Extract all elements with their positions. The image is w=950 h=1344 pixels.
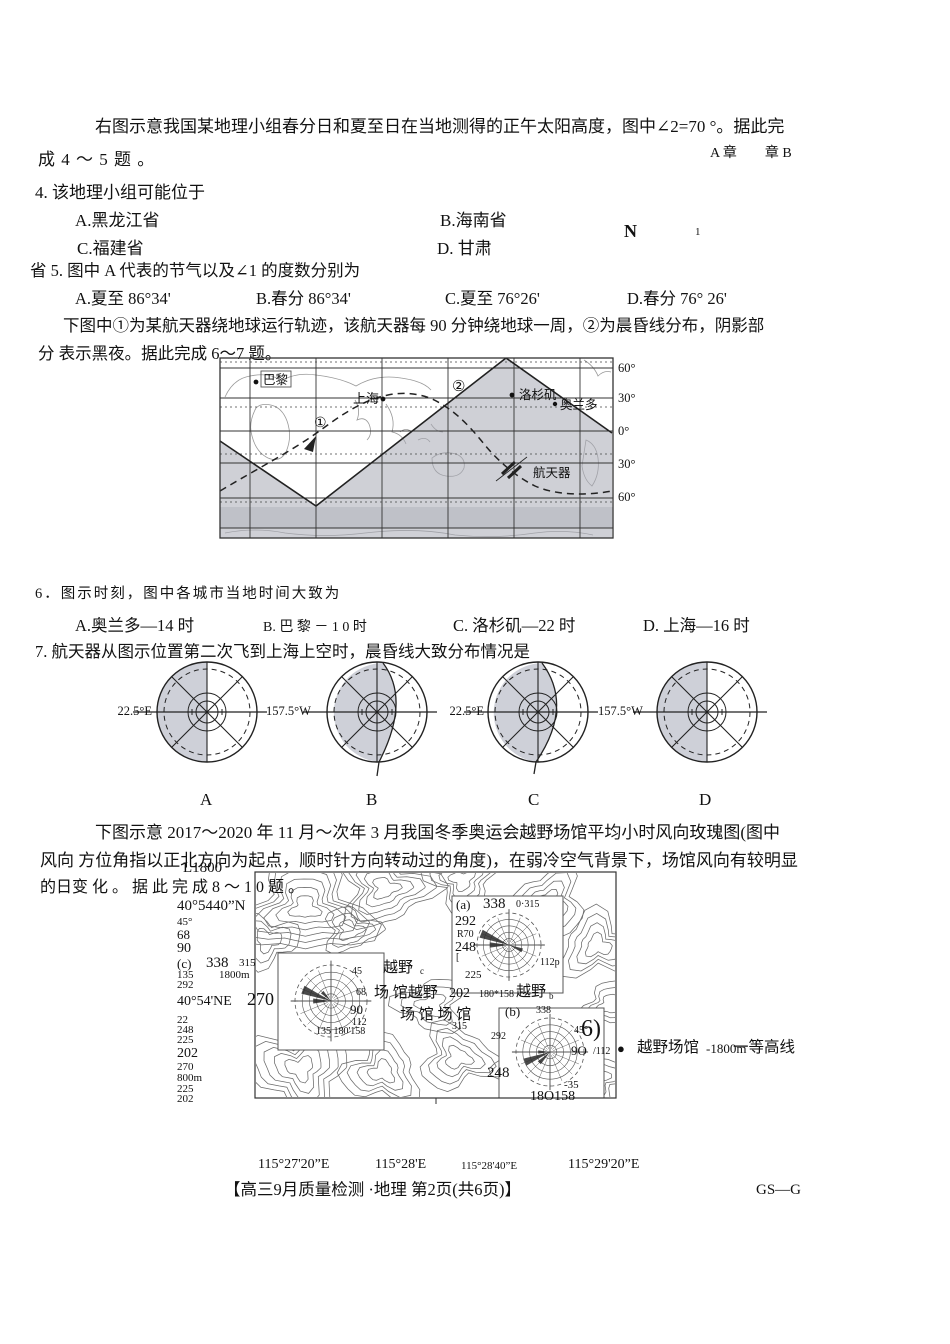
figure-remnant-n: N <box>624 220 637 243</box>
q5-option-a: A.夏至 86°34' <box>75 289 171 310</box>
q7-letter-d: D <box>699 789 711 810</box>
q4-option-c: C.福建省 <box>77 238 144 259</box>
shanghai-label: 上海 <box>353 391 379 406</box>
q4-option-b: B.海南省 <box>440 210 507 231</box>
scatter-label: 越野 <box>516 983 546 1002</box>
scatter-label: 292 <box>491 1031 506 1044</box>
svg-text:30°: 30° <box>618 391 636 405</box>
q7-lon-b: 157.5°W <box>266 704 311 720</box>
q4-option-a: A.黑龙江省 <box>75 210 160 231</box>
scatter-label: 45 <box>352 966 362 979</box>
scatter-label: 202 <box>449 985 470 1003</box>
q5-option-c: C.夏至 76°26' <box>445 289 540 310</box>
q7-lon-d: 157.5°W <box>598 704 643 720</box>
q5-stem: 省 5. 图中 A 代表的节气以及∠1 的度数分别为 <box>30 261 360 282</box>
scatter-label: (a) <box>456 897 470 913</box>
q7-letter-c: C <box>528 789 539 810</box>
scatter-label: 1800m <box>219 969 250 983</box>
q6-option-a: A.奥兰多—14 时 <box>75 616 194 637</box>
scatter-label: 225 <box>465 969 482 983</box>
footer-code: GS—G <box>756 1181 801 1200</box>
orlando-label: 奥兰多 <box>560 398 598 412</box>
scatter-label: 248 <box>487 1064 510 1083</box>
legend-venue-dot: ● <box>617 1041 625 1057</box>
contour-map-figure <box>250 864 630 1109</box>
scatter-label: 68 <box>356 987 366 1000</box>
intro810-line1: 下图示意 2017～2020 年 11 月～次年 3 月我国冬季奥运会越野场馆平… <box>95 822 780 843</box>
q5-option-d: D.春分 76° 26' <box>627 289 727 310</box>
world-map-figure: 巴黎 上海 洛杉矶 奥兰多 航天器 ① ② 60° 30° 0° 30° 60° <box>215 352 655 547</box>
orbit-marker-1: ① <box>314 416 327 431</box>
scatter-label: 90 <box>177 940 191 958</box>
q7-circle-d <box>633 662 767 762</box>
scatter-label: (b) <box>505 1004 520 1020</box>
lon-label-4: 115°29'20”E <box>568 1156 639 1174</box>
intro45-line2: 成 4 ～ 5 题 。 <box>38 149 155 170</box>
la-label: 洛杉矶 <box>519 387 557 402</box>
q7-letter-b: B <box>366 789 377 810</box>
q6-option-d: D. 上海—16 时 <box>643 616 750 637</box>
q7-circle-b <box>303 662 437 776</box>
q5-option-b: B.春分 86°34' <box>256 289 351 310</box>
q4-option-d: D. 甘肃 <box>437 238 492 259</box>
footer-title: 【高三9月质量检测 ·地理 第2页(共6页)】 <box>224 1180 521 1201</box>
scatter-label: 6) <box>581 1014 601 1044</box>
scatter-label: 0·315 <box>516 899 539 912</box>
q6-option-c: C. 洛杉矶—22 时 <box>453 616 575 637</box>
scatter-label: 9O <box>571 1043 587 1059</box>
scatter-label: 场 馆越野 <box>374 984 438 1003</box>
lon-label-3: 115°28'40”E <box>461 1160 517 1174</box>
terminator-marker-2: ② <box>452 379 465 395</box>
scatter-label: c <box>420 966 424 977</box>
paris-label: 巴黎 <box>263 373 289 387</box>
scatter-label: b <box>549 991 554 1002</box>
figure-remnant-1: 1 <box>695 226 701 240</box>
svg-text:0°: 0° <box>618 424 629 438</box>
scatter-label: 338 <box>483 895 506 914</box>
q6-option-b: B. 巴 黎 － 1 0 时 <box>263 619 367 637</box>
scatter-label: 202 <box>177 1045 198 1063</box>
q7-circle-c <box>464 662 598 774</box>
scatter-label: 90 <box>350 1002 363 1018</box>
scatter-label: 338 <box>536 1005 551 1018</box>
figure-remnant-ab: A 章 章 B <box>710 145 792 163</box>
intro810-line3: 的日变 化 。 据 此 完 成 8 ～ 1 0 题 。 <box>40 878 304 898</box>
scatter-label: 292 <box>177 979 194 993</box>
q7-lon-c: 22.5°E <box>434 704 484 720</box>
scatter-label: 315 <box>452 1021 467 1034</box>
q7-lon-a: 22.5°E <box>100 704 152 720</box>
scatter-label: L1800 <box>183 859 222 878</box>
svg-text:30°: 30° <box>618 457 636 471</box>
q7-circle-a <box>133 662 267 762</box>
scatter-label: 270 <box>247 988 274 1011</box>
q4-stem: 4. 该地理小组可能位于 <box>35 182 205 203</box>
latitude-labels: 60° 30° 0° 30° 60° <box>618 361 636 504</box>
intro45-line1: 右图示意我国某地理小组春分日和夏至日在当地测得的正午太阳高度，图中∠2=70 °… <box>95 116 784 137</box>
scatter-label: 202 <box>177 1093 194 1107</box>
intro67-line1: 下图中①为某航天器绕地球运行轨迹，该航天器每 90 分钟绕地球一周，②为晨昏线分… <box>63 316 764 337</box>
spacecraft-label: 航天器 <box>533 465 571 480</box>
scatter-label: 40°5440”N <box>177 897 246 916</box>
scatter-label: [ <box>456 952 459 965</box>
scatter-label: /112 <box>593 1046 610 1059</box>
scatter-label: 越野 <box>383 959 413 978</box>
legend-contour-label: 一等高线 <box>733 1038 795 1057</box>
legend-venue-label: 越野场馆 <box>637 1038 699 1057</box>
svg-text:60°: 60° <box>618 361 636 375</box>
q7-letter-a: A <box>200 789 212 810</box>
scatter-label: 40°54'NE <box>177 993 232 1011</box>
scatter-label: 112p <box>540 957 560 970</box>
exam-page: 右图示意我国某地理小组春分日和夏至日在当地测得的正午太阳高度，图中∠2=70 °… <box>0 0 950 1344</box>
orbit-arrow <box>304 436 316 452</box>
lon-label-2: 115°28'E <box>375 1156 426 1174</box>
scatter-label: 135 180'158 <box>316 1026 365 1039</box>
svg-text:60°: 60° <box>618 490 636 504</box>
lon-label-1: 115°27'20”E <box>258 1156 329 1174</box>
scatter-label: 180*158 <box>479 989 514 1002</box>
scatter-label: 292 <box>455 913 476 931</box>
q6-stem: 6．图示时刻，图中各城市当地时间大致为 <box>35 585 341 603</box>
scatter-label: 18O158 <box>530 1088 575 1106</box>
